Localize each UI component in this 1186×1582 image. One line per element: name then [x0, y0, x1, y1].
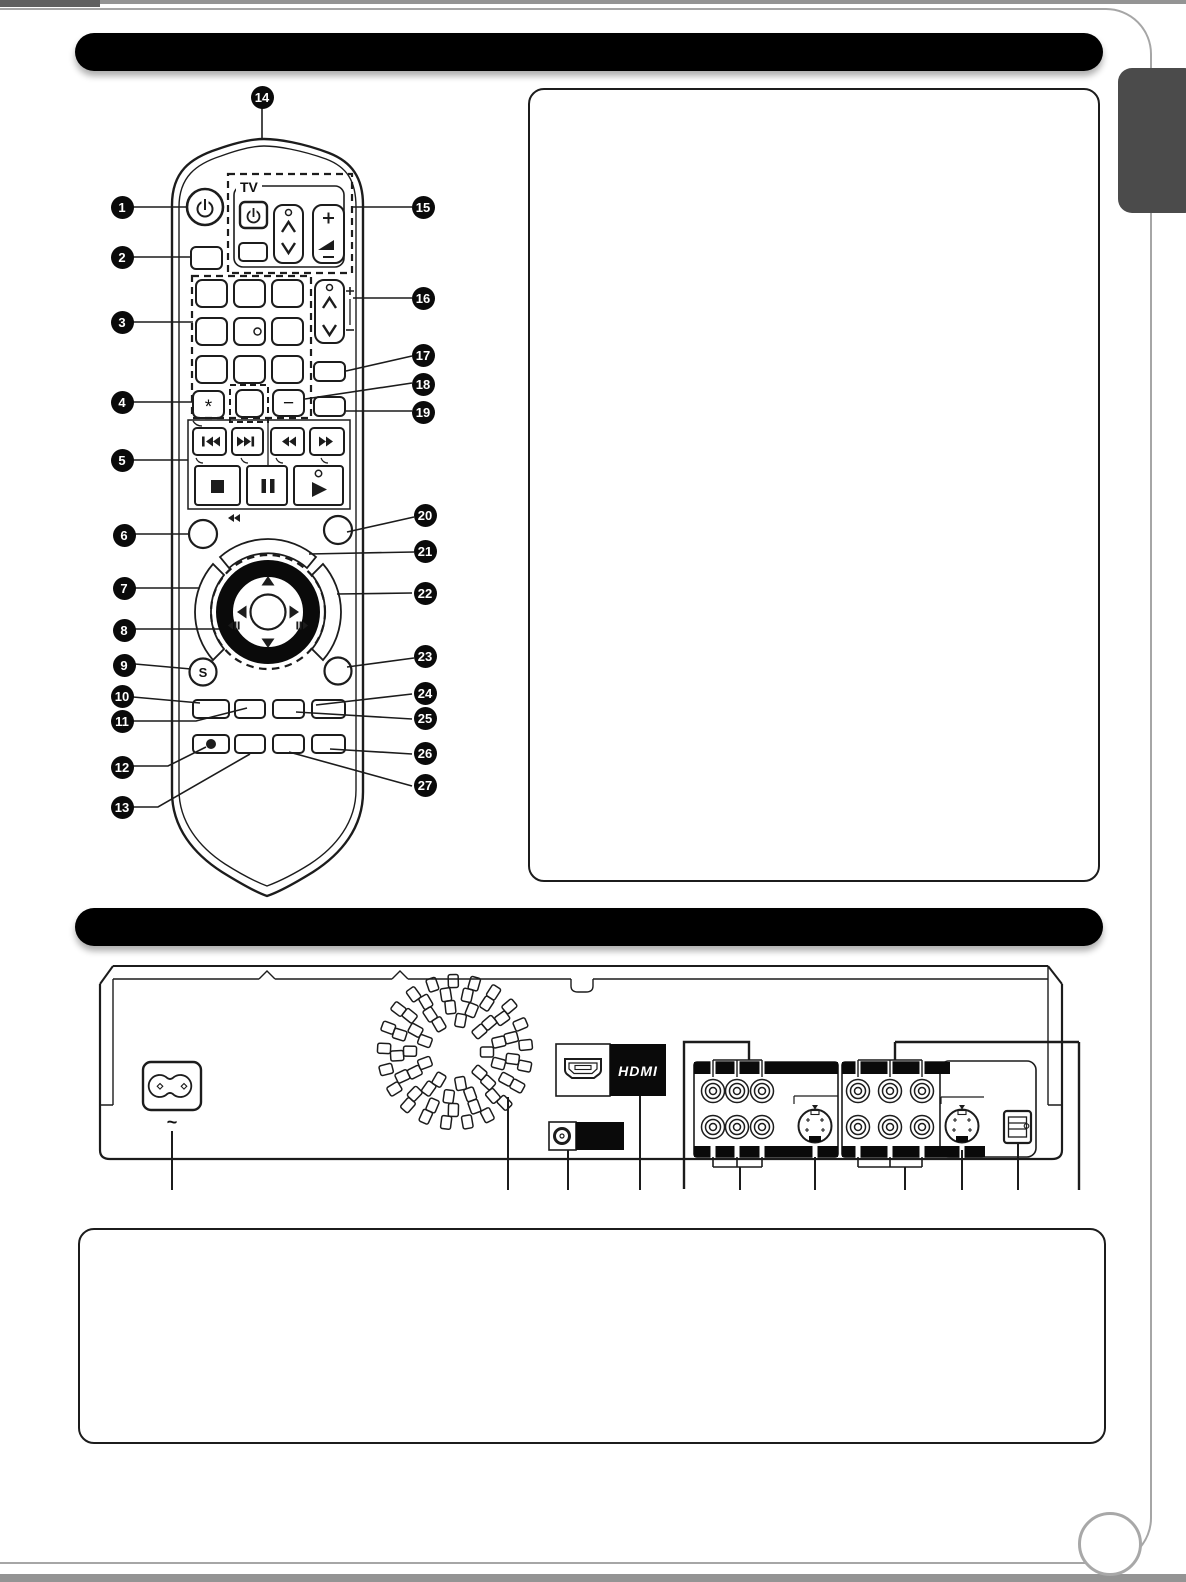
asterisk-label: * — [205, 397, 213, 418]
section-header-rear-panel — [75, 908, 1103, 946]
av-jack-group-2 — [842, 1060, 1036, 1158]
callout-23: 23 — [414, 645, 437, 668]
callout-17: 17 — [412, 344, 435, 367]
coaxial-audio-jack — [549, 1122, 624, 1150]
button-19 — [314, 397, 345, 416]
tv-power-button — [240, 202, 267, 228]
callout-1: 1 — [111, 196, 134, 219]
skip-forward-icon — [237, 437, 254, 447]
tv-volume-rocker — [313, 205, 344, 263]
callout-13: 13 — [111, 796, 134, 819]
callout-26: 26 — [414, 742, 437, 765]
rear-panel-figure: ~ HDMI — [95, 955, 1085, 1200]
callout-8: 8 — [113, 619, 136, 642]
section-header-remote — [75, 33, 1103, 71]
callout-7: 7 — [113, 577, 136, 600]
callout-20: 20 — [414, 504, 437, 527]
remote-figure: TV S * − — [85, 80, 455, 910]
page-bottom-edge — [0, 1574, 1186, 1582]
nav-arrows — [237, 576, 299, 648]
tv-channel-rocker — [274, 205, 303, 263]
callout-19: 19 — [412, 401, 435, 424]
record-icon — [206, 739, 216, 749]
page-top-edge — [0, 0, 1186, 4]
s-button-label: S — [199, 665, 208, 680]
callout-12: 12 — [111, 756, 134, 779]
note-box — [78, 1228, 1106, 1444]
rewind-icon — [282, 437, 296, 447]
av-jack-group-1 — [694, 1060, 838, 1158]
nav-center-button — [251, 595, 286, 630]
callout-18: 18 — [412, 373, 435, 396]
key-5-bump — [254, 328, 261, 335]
callout-25: 25 — [414, 707, 437, 730]
button-20 — [324, 516, 352, 544]
button-23 — [325, 658, 352, 685]
tv-label: TV — [240, 179, 259, 195]
callout-14: 14 — [251, 86, 274, 109]
callout-27: 27 — [414, 774, 437, 797]
button-6 — [189, 520, 217, 548]
ac-symbol-label: ~ — [167, 1112, 178, 1132]
chapter-tab — [1118, 68, 1186, 213]
pause-button — [247, 466, 287, 505]
minus-label: − — [283, 393, 294, 414]
button-input — [236, 390, 263, 417]
tv-input-button — [239, 243, 267, 261]
callout-24: 24 — [414, 682, 437, 705]
callout-3: 3 — [111, 311, 134, 334]
page-top-edge-dark — [0, 0, 100, 7]
callout-15: 15 — [412, 196, 435, 219]
channel-rocker — [315, 280, 354, 343]
callout-2: 2 — [111, 246, 134, 269]
function-button-rows — [193, 700, 345, 753]
callout-9: 9 — [113, 654, 136, 677]
hdmi-logo: HDMI — [618, 1063, 658, 1079]
pause-icon — [262, 479, 275, 493]
navigation-cluster — [195, 539, 341, 669]
manual-page: TV S * − — [0, 0, 1186, 1582]
drive-select-button — [191, 247, 222, 269]
transport-buttons — [188, 420, 350, 509]
fast-forward-icon — [319, 437, 333, 447]
remote-description-box — [528, 88, 1100, 882]
slow-rew-mark — [228, 514, 240, 522]
callout-16: 16 — [412, 287, 435, 310]
callout-4: 4 — [111, 391, 134, 414]
play-icon — [312, 482, 327, 497]
callout-11: 11 — [111, 710, 134, 733]
callout-5: 5 — [111, 449, 134, 472]
callout-6: 6 — [113, 524, 136, 547]
button-17 — [314, 362, 345, 381]
power-button — [187, 189, 223, 225]
stop-icon — [211, 480, 224, 493]
skip-back-icon — [202, 437, 220, 447]
page-number-circle — [1078, 1512, 1142, 1576]
cooling-fan — [377, 974, 532, 1129]
callout-21: 21 — [414, 540, 437, 563]
callout-22: 22 — [414, 582, 437, 605]
ac-inlet — [143, 1062, 201, 1110]
callout-10: 10 — [111, 685, 134, 708]
